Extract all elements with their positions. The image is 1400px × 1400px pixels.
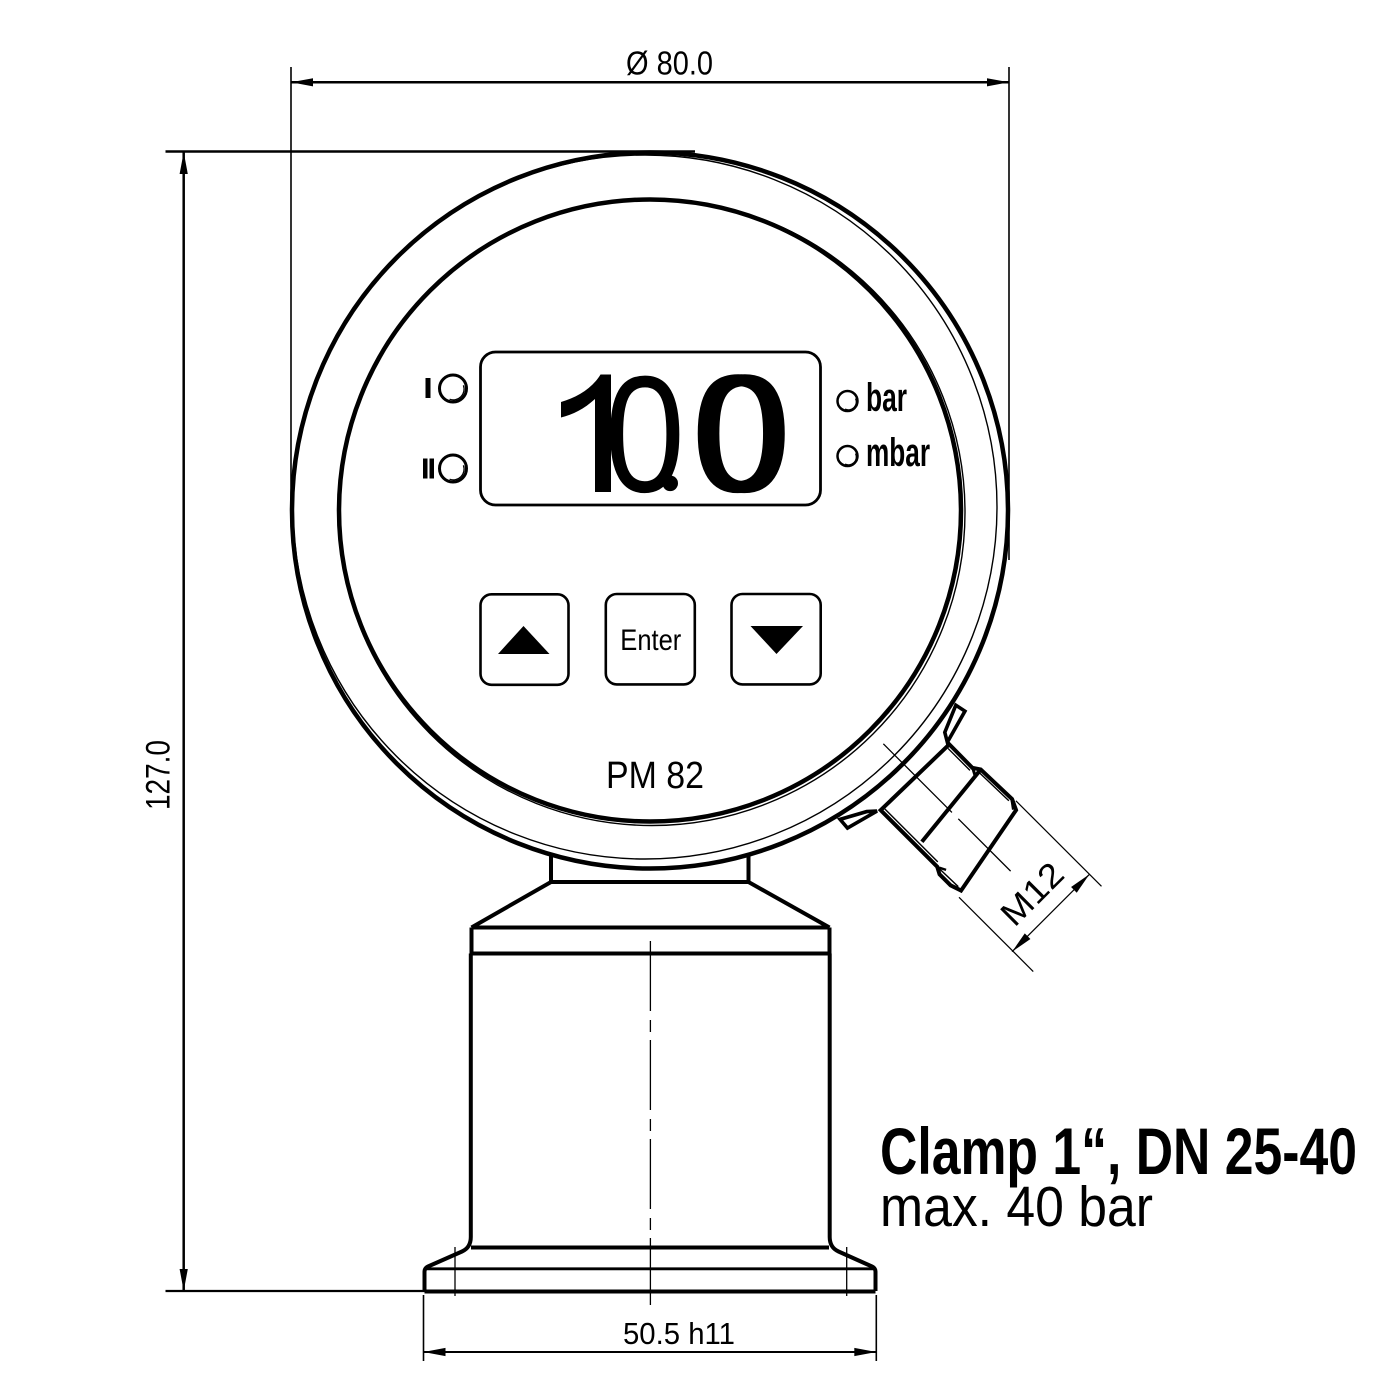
svg-text:0: 0 bbox=[698, 340, 791, 528]
svg-text:mbar: mbar bbox=[866, 431, 930, 475]
svg-text:Enter: Enter bbox=[620, 624, 681, 657]
svg-text:50.5 h11: 50.5 h11 bbox=[623, 1316, 735, 1351]
svg-text:bar: bar bbox=[866, 376, 907, 420]
svg-text:max. 40 bar: max. 40 bar bbox=[880, 1175, 1153, 1239]
svg-text:127.0: 127.0 bbox=[139, 740, 177, 810]
svg-text:0: 0 bbox=[605, 341, 685, 527]
svg-text:PM 82: PM 82 bbox=[606, 755, 704, 797]
svg-text:Ø 80.0: Ø 80.0 bbox=[626, 45, 713, 82]
